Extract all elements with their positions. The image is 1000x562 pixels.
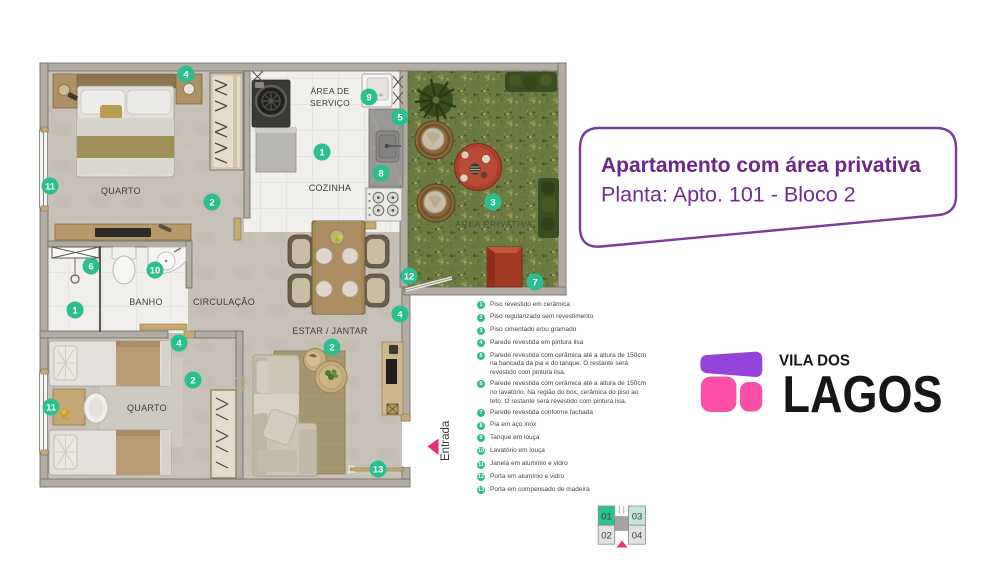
svg-text:4: 4 [176, 339, 182, 350]
svg-text:COZINHA: COZINHA [309, 183, 352, 193]
svg-text:11: 11 [45, 182, 56, 193]
svg-text:3: 3 [490, 198, 495, 209]
svg-text:6: 6 [88, 262, 93, 273]
svg-text:BANHO: BANHO [129, 297, 163, 307]
svg-text:ÁREA DE: ÁREA DE [311, 86, 350, 96]
svg-text:LAGOS: LAGOS [783, 366, 943, 420]
svg-text:02: 02 [601, 531, 612, 542]
svg-text:ÁREA PRIVATIVA: ÁREA PRIVATIVA [455, 219, 533, 229]
svg-text:Apartamento com área privativa: Apartamento com área privativa [601, 154, 921, 177]
svg-text:1: 1 [319, 148, 325, 159]
svg-text:QUARTO: QUARTO [101, 186, 141, 196]
svg-text:2: 2 [329, 343, 334, 354]
svg-text:2: 2 [190, 376, 195, 387]
svg-text:7: 7 [532, 278, 537, 289]
svg-text:04: 04 [632, 531, 643, 542]
svg-text:5: 5 [397, 113, 403, 124]
svg-text:QUARTO: QUARTO [127, 403, 167, 413]
svg-text:11: 11 [46, 403, 57, 414]
svg-text:10: 10 [150, 266, 161, 277]
svg-text:12: 12 [404, 272, 415, 283]
svg-text:01: 01 [601, 511, 612, 522]
svg-text:1: 1 [72, 306, 78, 317]
svg-text:8: 8 [378, 169, 383, 180]
svg-text:4: 4 [183, 70, 189, 81]
svg-text:Planta: Apto. 101 - Bloco 2: Planta: Apto. 101 - Bloco 2 [601, 183, 856, 207]
svg-text:2: 2 [209, 198, 214, 209]
svg-text:SERVIÇO: SERVIÇO [310, 98, 350, 108]
svg-text:4: 4 [397, 310, 403, 321]
svg-text:13: 13 [373, 465, 384, 476]
svg-text:Entrada: Entrada [440, 420, 452, 461]
svg-text:ESTAR / JANTAR: ESTAR / JANTAR [292, 326, 368, 336]
svg-text:03: 03 [632, 511, 643, 522]
svg-text:9: 9 [366, 93, 371, 104]
svg-text:CIRCULAÇÃO: CIRCULAÇÃO [193, 297, 255, 307]
